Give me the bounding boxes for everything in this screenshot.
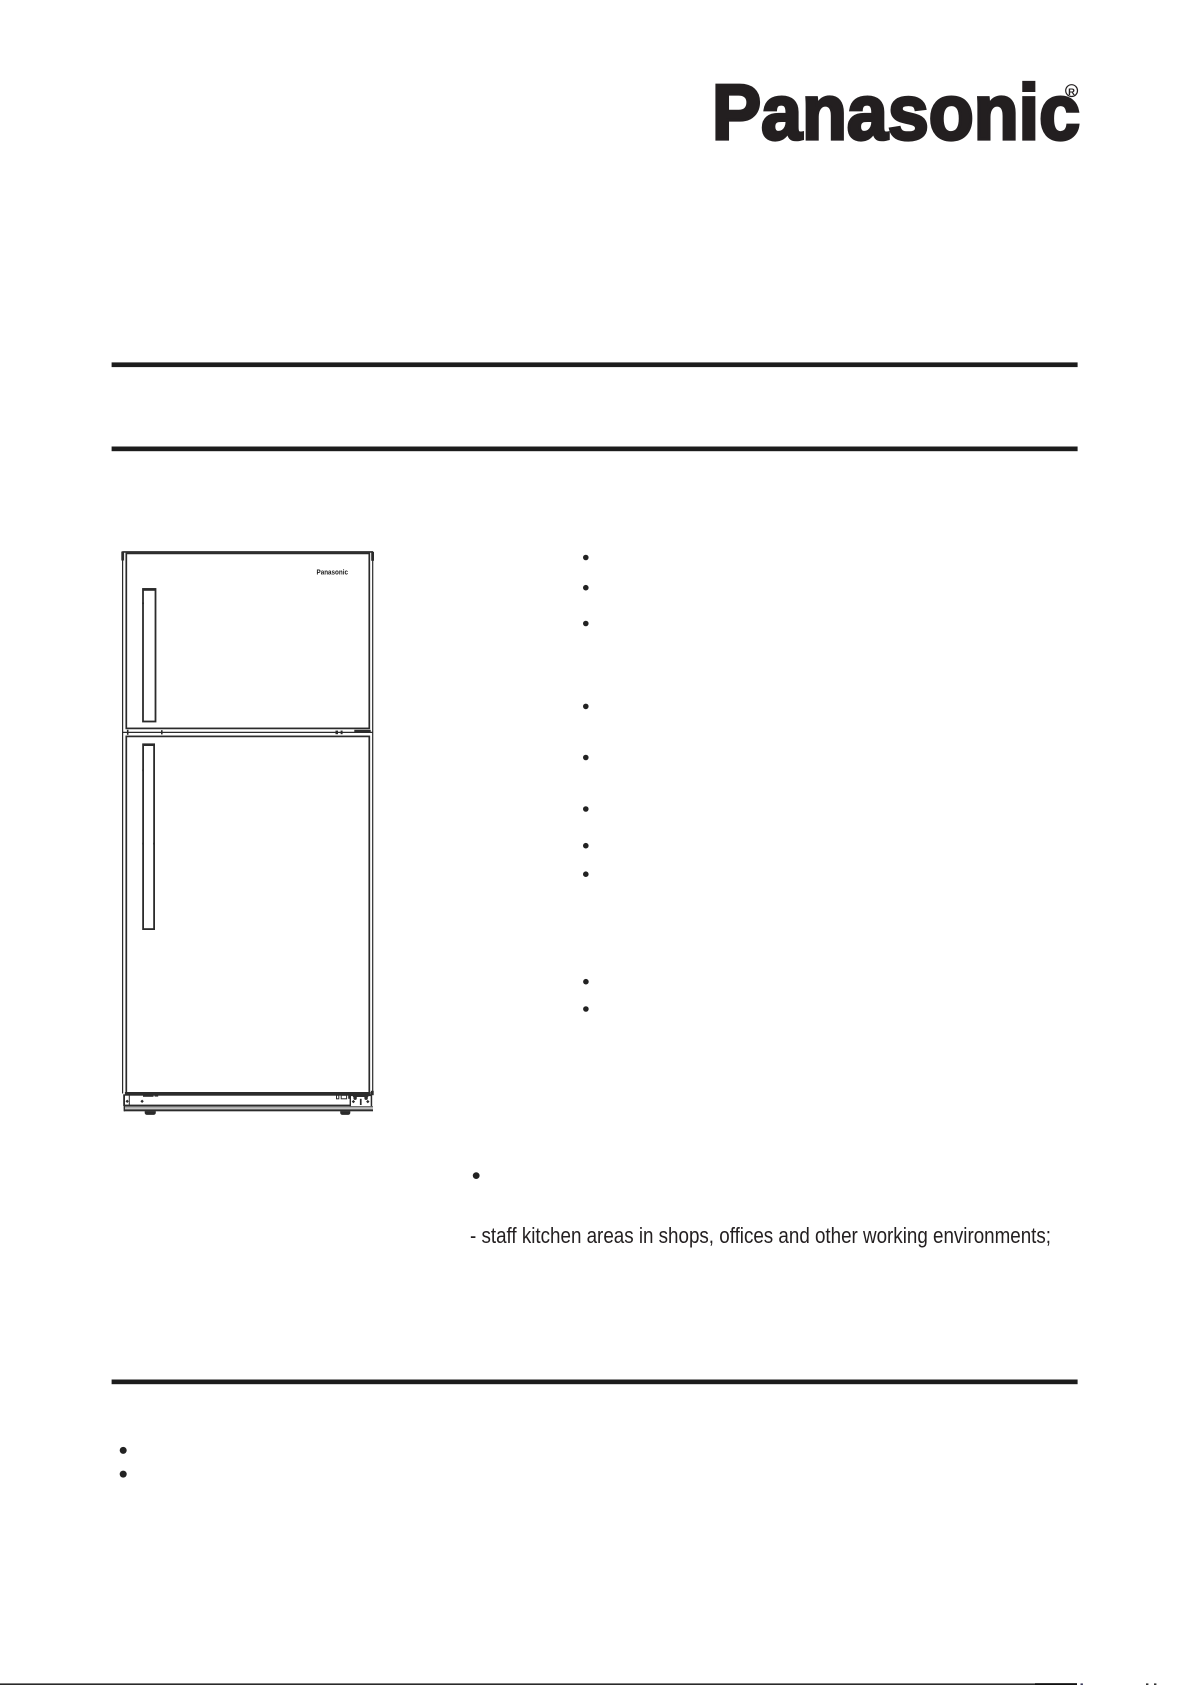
svg-text:R: R bbox=[1068, 87, 1075, 98]
svg-text:Panasonic: Panasonic bbox=[712, 68, 1080, 156]
svg-text:- staff kitchen areas in shops: - staff kitchen areas in shops, offices … bbox=[470, 1223, 1051, 1248]
svg-text:Panasonic: Panasonic bbox=[317, 570, 349, 577]
